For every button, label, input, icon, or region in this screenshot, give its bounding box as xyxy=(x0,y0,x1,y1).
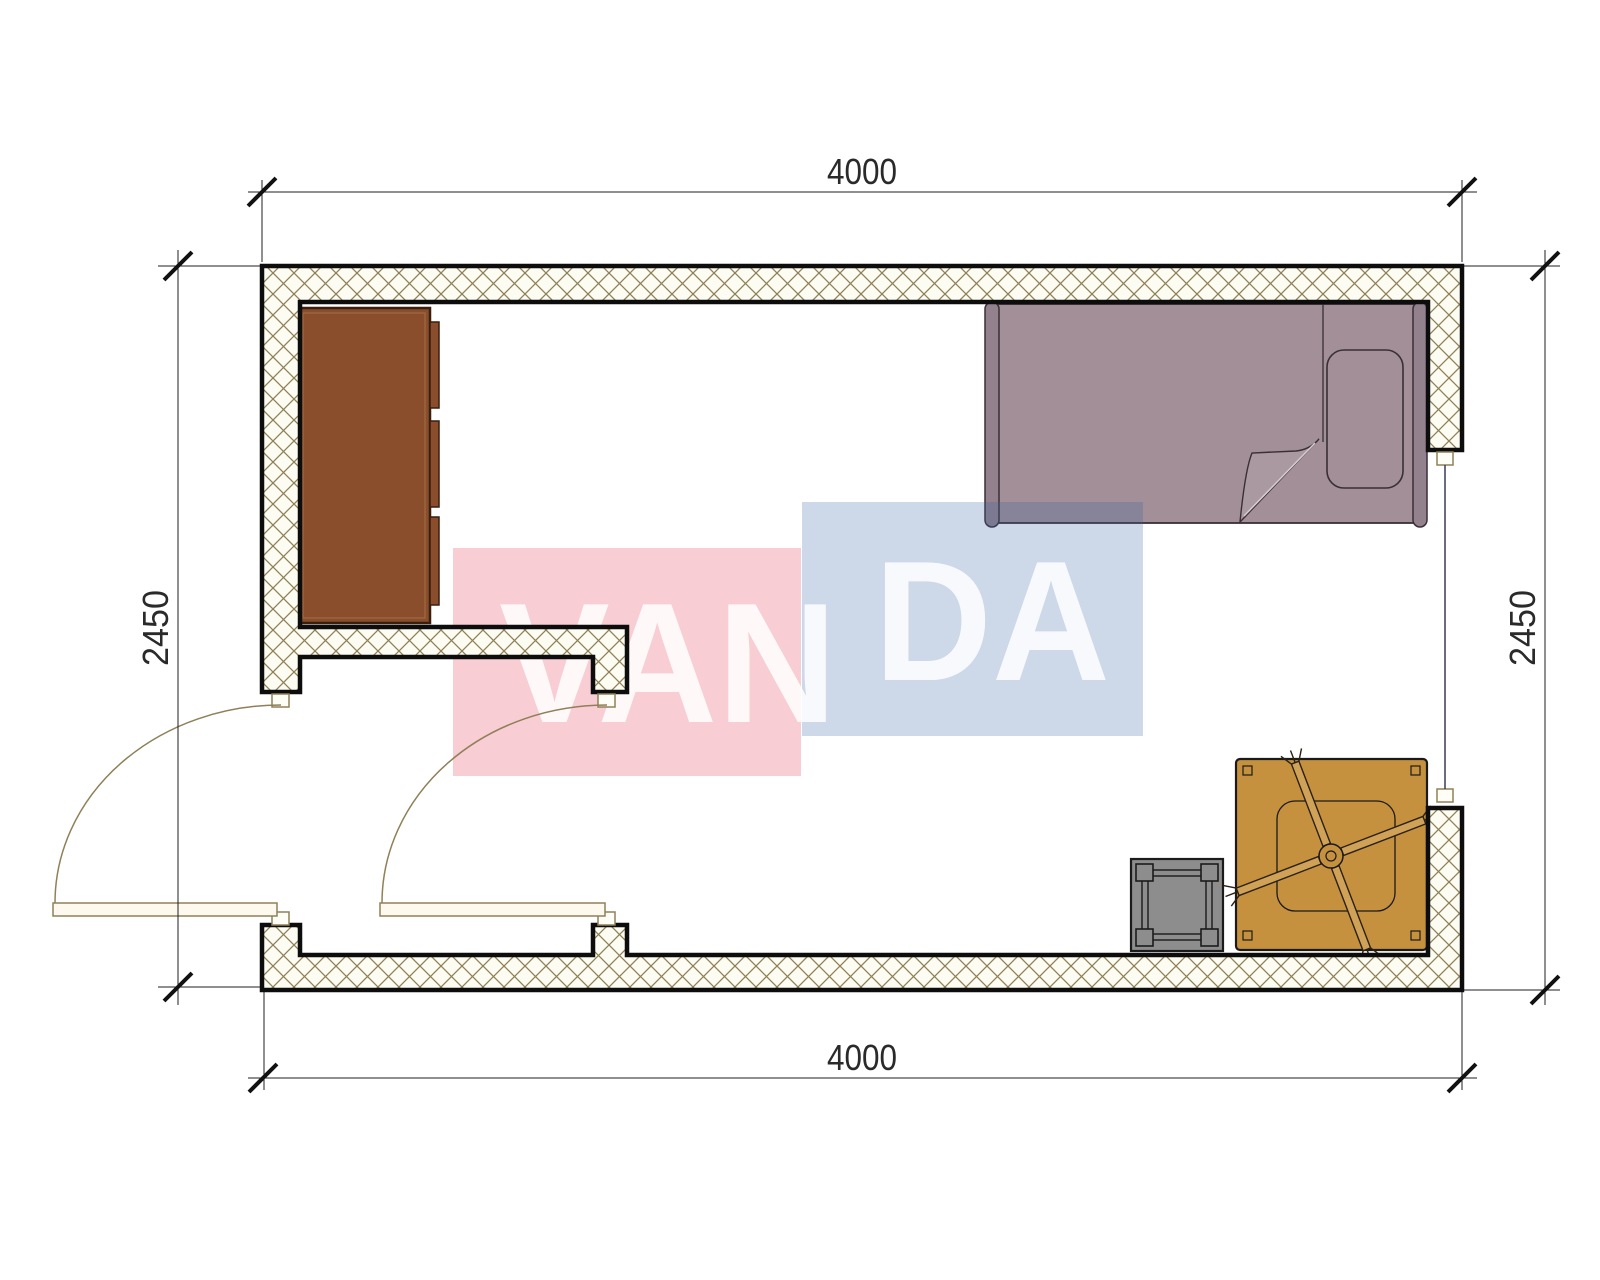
stool-leg xyxy=(1136,864,1153,881)
stool xyxy=(1131,859,1223,951)
door-swing-arc xyxy=(55,705,281,903)
dimension-value-right: 2450 xyxy=(1502,590,1543,666)
table-corner xyxy=(1243,766,1252,775)
window xyxy=(1437,452,1453,802)
wardrobe-door-panel xyxy=(430,421,439,507)
bottom-dimension: 4000 xyxy=(248,992,1477,1092)
window-jamb xyxy=(1437,452,1453,465)
table-corner xyxy=(1411,766,1420,775)
fan-hub-center xyxy=(1326,851,1336,861)
stool-leg xyxy=(1136,929,1153,946)
table-corner xyxy=(1411,931,1420,940)
watermark-text-da: DA xyxy=(874,526,1110,717)
dimension-value-bottom: 4000 xyxy=(827,1037,897,1078)
dimension-value-left: 2450 xyxy=(135,590,176,666)
fan-table xyxy=(1222,747,1441,966)
stool-leg xyxy=(1201,864,1218,881)
wardrobe-body xyxy=(298,308,430,623)
wardrobe-door-panel xyxy=(430,322,439,408)
wardrobe xyxy=(298,308,439,623)
wardrobe-door-panel xyxy=(430,517,439,605)
top-dimension: 4000 xyxy=(248,151,1477,262)
dimension-value-top: 4000 xyxy=(827,151,897,192)
table-corner xyxy=(1243,931,1252,940)
right-dimension: 2450 xyxy=(1464,250,1560,1005)
bed xyxy=(985,302,1427,527)
left-dimension: 2450 xyxy=(135,250,260,1005)
watermark-text-van: VAN xyxy=(499,568,837,759)
bed-headboard xyxy=(1413,302,1427,527)
window-jamb xyxy=(1437,789,1453,802)
door-leaf xyxy=(53,903,277,916)
stool-leg xyxy=(1201,929,1218,946)
bed-pillow xyxy=(1327,350,1403,488)
door-left xyxy=(53,694,289,925)
bed-footboard xyxy=(985,302,999,527)
floor-plan-page: VAN DA xyxy=(0,0,1600,1280)
floor-plan-drawing: VAN DA xyxy=(0,0,1600,1280)
door-leaf xyxy=(380,903,605,916)
